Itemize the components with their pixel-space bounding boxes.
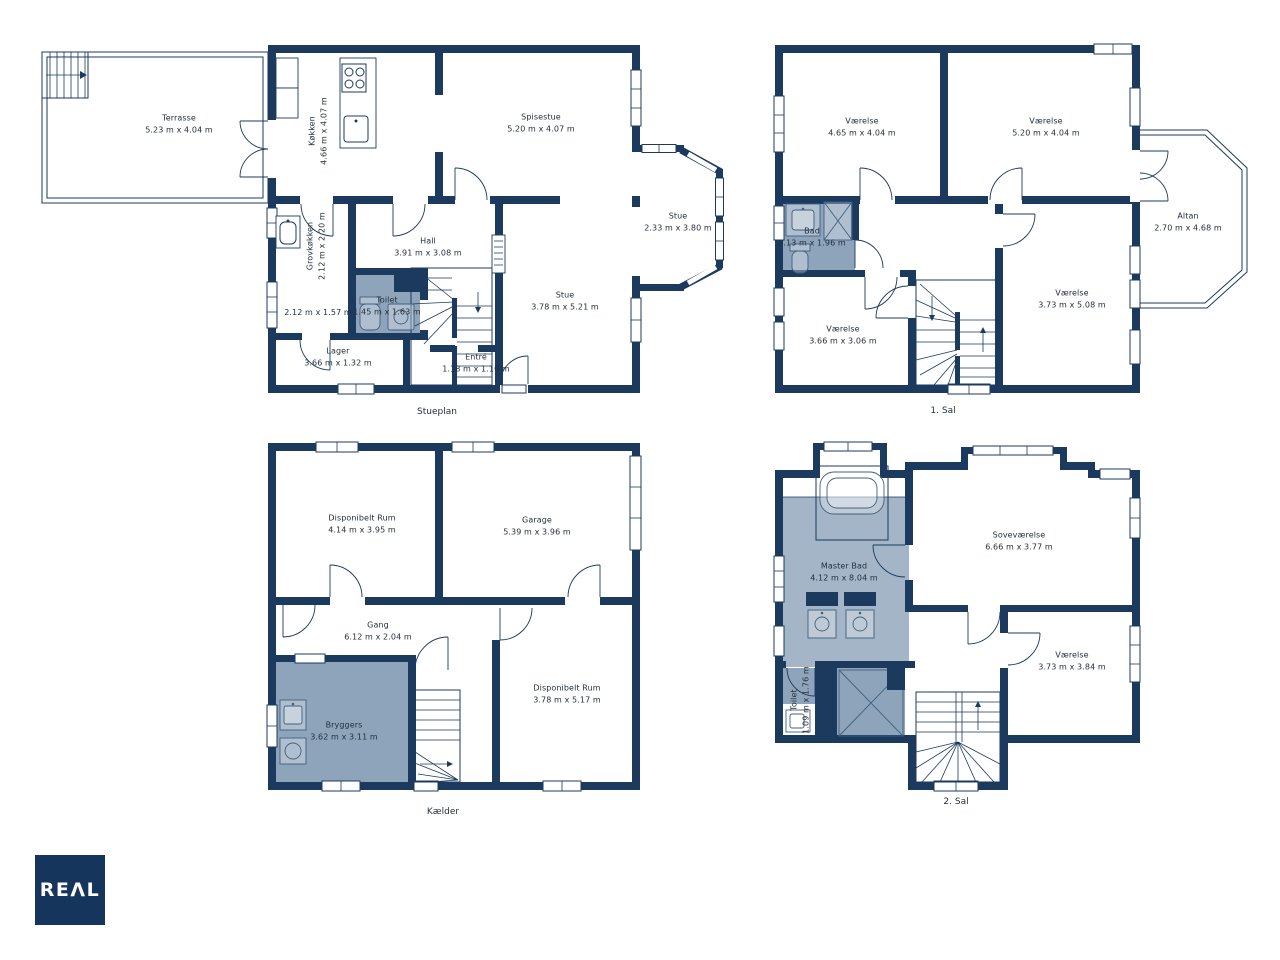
stairs bbox=[916, 280, 1000, 385]
stueplan-drawing bbox=[42, 45, 724, 394]
room-label-toilet: Toilet 1.45 m x 1.63 m bbox=[353, 294, 421, 317]
floor-caption-kaelder: Kælder bbox=[427, 807, 459, 817]
doors bbox=[855, 150, 1168, 318]
radiator-icon bbox=[492, 235, 505, 273]
kitchen-cabinets-icon bbox=[276, 58, 298, 118]
floor-caption-2-sal: 2. Sal bbox=[943, 797, 968, 807]
room-label-vaerelse-4: Værelse 3.73 m x 5.08 m bbox=[1038, 287, 1106, 310]
room-label-spisestue: Spisestue 5.20 m x 4.07 m bbox=[507, 111, 575, 134]
room-label-disponibelt-rum-2: Disponibelt Rum 3.78 m x 5.17 m bbox=[533, 682, 601, 705]
washer-icon bbox=[280, 738, 306, 764]
real-logo: REΛL bbox=[35, 855, 105, 925]
room-label-altan: Altan 2.70 m x 4.68 m bbox=[1154, 210, 1222, 233]
room-label-koekken: Køkken 4.66 m x 4.07 m bbox=[306, 97, 329, 165]
stairs bbox=[412, 690, 460, 782]
room-label-entre: Entré 1.18 m x 1.10 m bbox=[442, 351, 510, 374]
room-label-vaerelse-5: Værelse 3.73 m x 3.84 m bbox=[1038, 649, 1106, 672]
room-label-master-bad: Master Bad 4.12 m x 8.04 m bbox=[810, 560, 878, 583]
floor-caption-1-sal: 1. Sal bbox=[930, 406, 955, 416]
room-label-bad: Bad 2.13 m x 1.96 m bbox=[778, 225, 846, 248]
room-label-hall: Hall 3.91 m x 3.08 m bbox=[394, 235, 462, 258]
room-label-gang: Gang 6.12 m x 2.04 m bbox=[344, 619, 412, 642]
room-label-bryggers: Bryggers 3.62 m x 3.11 m bbox=[310, 719, 378, 742]
room-label-sovevaerelse: Soveværelse 6.66 m x 3.77 m bbox=[985, 529, 1053, 552]
floor-caption-stueplan: Stueplan bbox=[417, 407, 457, 417]
floorplan-sheet: Terrasse 5.23 m x 4.04 m Køkken 4.66 m x… bbox=[0, 0, 1280, 960]
room-label-toilet-2sal: Toilet 1.09 m x 1.76 m bbox=[788, 666, 811, 734]
stairs bbox=[916, 692, 1000, 782]
utility-sink-icon bbox=[276, 216, 300, 248]
room-label-vaerelse-3: Værelse 3.66 m x 3.06 m bbox=[809, 323, 877, 346]
room-label-lager: Lager 3.66 m x 1.32 m bbox=[304, 345, 372, 368]
room-label-unnamed-dims: 2.12 m x 1.57 m bbox=[284, 307, 352, 319]
room-label-vaerelse-1: Værelse 4.65 m x 4.04 m bbox=[828, 115, 896, 138]
floorplan-drawing bbox=[0, 0, 1280, 960]
stair-direction-arrow-icon bbox=[80, 71, 87, 79]
room-label-terrasse: Terrasse 5.23 m x 4.04 m bbox=[145, 112, 213, 135]
room-label-disponibelt-rum-1: Disponibelt Rum 4.14 m x 3.95 m bbox=[328, 512, 396, 535]
laundry-sink-icon bbox=[280, 700, 306, 730]
room-label-grovkoekken: Grovkøkken 2.12 m x 2.20 m bbox=[304, 212, 327, 280]
room-label-stue-large: Stue 3.78 m x 5.21 m bbox=[531, 289, 599, 312]
room-label-vaerelse-2: Værelse 5.20 m x 4.04 m bbox=[1012, 115, 1080, 138]
second-floor-drawing bbox=[774, 442, 1140, 791]
room-label-garage: Garage 5.39 m x 3.96 m bbox=[503, 514, 571, 537]
room-label-stue-bay: Stue 2.33 m x 3.80 m bbox=[644, 210, 712, 233]
real-logo-text: REΛL bbox=[40, 879, 100, 901]
